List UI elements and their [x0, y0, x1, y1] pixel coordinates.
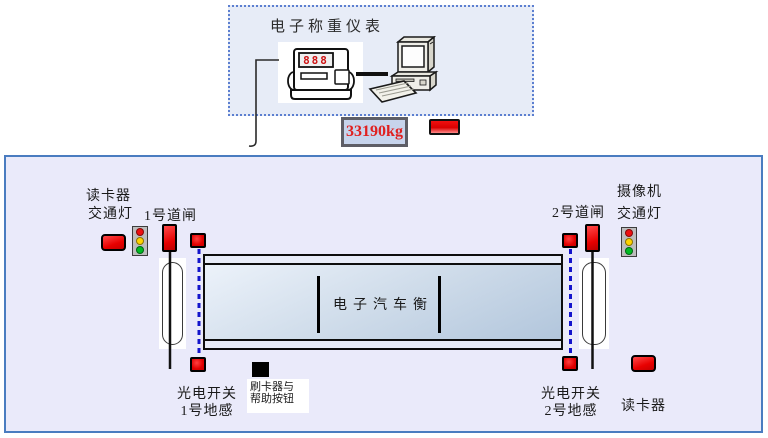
weight-display: 33190kg [341, 117, 408, 147]
gate1-label: 1号道闸 [144, 205, 197, 225]
red-light-icon [625, 229, 633, 237]
truck-scale-platform: 电子汽车衡 [203, 254, 563, 350]
scale-label: 电子汽车衡 [205, 294, 561, 314]
photoswitch1-label-line2: 1号地感 [168, 403, 246, 420]
gate1-barrier [162, 224, 177, 252]
swiper-help-button[interactable] [252, 362, 269, 377]
left-traffic-light-label: 交通灯 [88, 203, 133, 223]
gate2-label: 2号道闸 [552, 202, 605, 222]
photoswitch1-top [190, 233, 206, 248]
swiper-label-line2: 帮助按钮 [250, 393, 309, 405]
truck-scale-system-diagram: 电子称重仪表 888 [0, 0, 768, 438]
status-indicator-button[interactable] [429, 119, 460, 135]
yellow-light-icon [136, 237, 144, 245]
gate1-ground-loop [159, 258, 186, 349]
yellow-light-icon [625, 238, 633, 246]
swiper-help-label: 刷卡器与 帮助按钮 [247, 379, 309, 413]
weight-value: 33190kg [346, 123, 403, 141]
red-light-icon [136, 228, 144, 236]
left-card-reader-indicator [101, 234, 126, 251]
swiper-label-line1: 刷卡器与 [250, 381, 309, 393]
photoswitch1-label: 光电开关 1号地感 [168, 386, 246, 420]
green-light-icon [625, 247, 633, 255]
gate2-loop-outline [582, 262, 606, 345]
photoswitch2-top [562, 233, 578, 248]
indicator-digits: 888 [303, 54, 329, 67]
weighing-indicator-icon: 888 [278, 42, 363, 103]
right-card-reader-label: 读卡器 [621, 395, 666, 415]
photoswitch2-label-line1: 光电开关 [532, 386, 610, 403]
left-card-reader-label: 读卡器 [86, 185, 131, 205]
green-light-icon [136, 246, 144, 254]
photoswitch1-bottom [190, 357, 206, 372]
photoswitch2-label: 光电开关 2号地感 [532, 386, 610, 420]
gate2-barrier [585, 224, 600, 252]
instrument-panel-title: 电子称重仪表 [270, 15, 384, 36]
right-traffic-light-label: 交通灯 [617, 203, 662, 223]
photoswitch2-bottom [562, 356, 578, 371]
right-traffic-light-icon [621, 227, 637, 257]
photoswitch1-label-line1: 光电开关 [168, 386, 246, 403]
gate2-ground-loop [579, 258, 609, 349]
camera-label: 摄像机 [617, 181, 662, 201]
left-traffic-light-icon [132, 226, 148, 256]
weighing-indicator-backing: 888 [278, 42, 363, 103]
gate1-loop-outline [162, 262, 183, 345]
computer-icon [368, 36, 448, 108]
right-card-reader-indicator [631, 355, 656, 372]
photoswitch2-label-line2: 2号地感 [532, 403, 610, 420]
